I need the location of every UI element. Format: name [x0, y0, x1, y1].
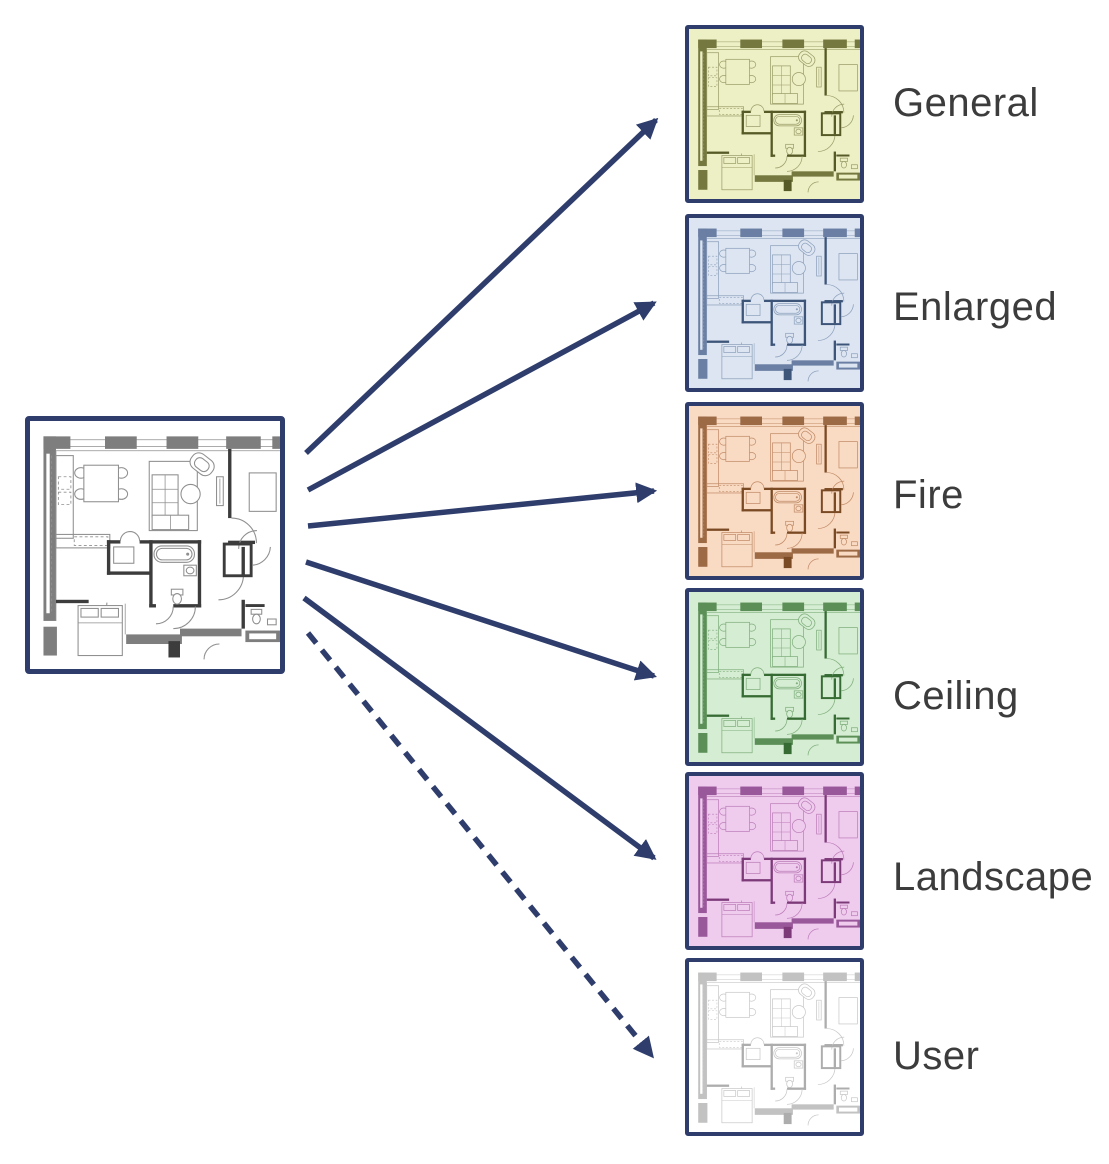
thumbnail-user — [685, 958, 864, 1136]
floorplan-drawing — [30, 421, 280, 669]
label-fire: Fire — [893, 472, 964, 518]
thumbnail-enlarged — [685, 214, 864, 392]
label-user: User — [893, 1033, 979, 1079]
thumbnail-general — [685, 25, 864, 203]
arrow-to-ceiling — [306, 562, 654, 676]
arrow-to-enlarged — [308, 303, 654, 490]
label-enlarged: Enlarged — [893, 284, 1057, 330]
thumbnail-landscape — [685, 772, 864, 950]
floorplan-drawing — [689, 29, 860, 199]
floorplan-drawing — [689, 962, 860, 1132]
arrow-to-general — [306, 120, 656, 453]
arrow-to-landscape — [304, 598, 654, 858]
arrow-to-user — [308, 633, 652, 1056]
thumbnail-fire — [685, 402, 864, 580]
floorplan-drawing — [689, 776, 860, 946]
label-landscape: Landscape — [893, 854, 1093, 900]
floorplan-drawing — [689, 592, 860, 762]
floorplan-drawing — [689, 406, 860, 576]
label-general: General — [893, 80, 1039, 126]
thumbnail-ceiling — [685, 588, 864, 766]
floorplan-drawing — [689, 218, 860, 388]
arrow-to-fire — [308, 491, 654, 526]
source-floorplan — [25, 416, 285, 674]
label-ceiling: Ceiling — [893, 673, 1019, 719]
